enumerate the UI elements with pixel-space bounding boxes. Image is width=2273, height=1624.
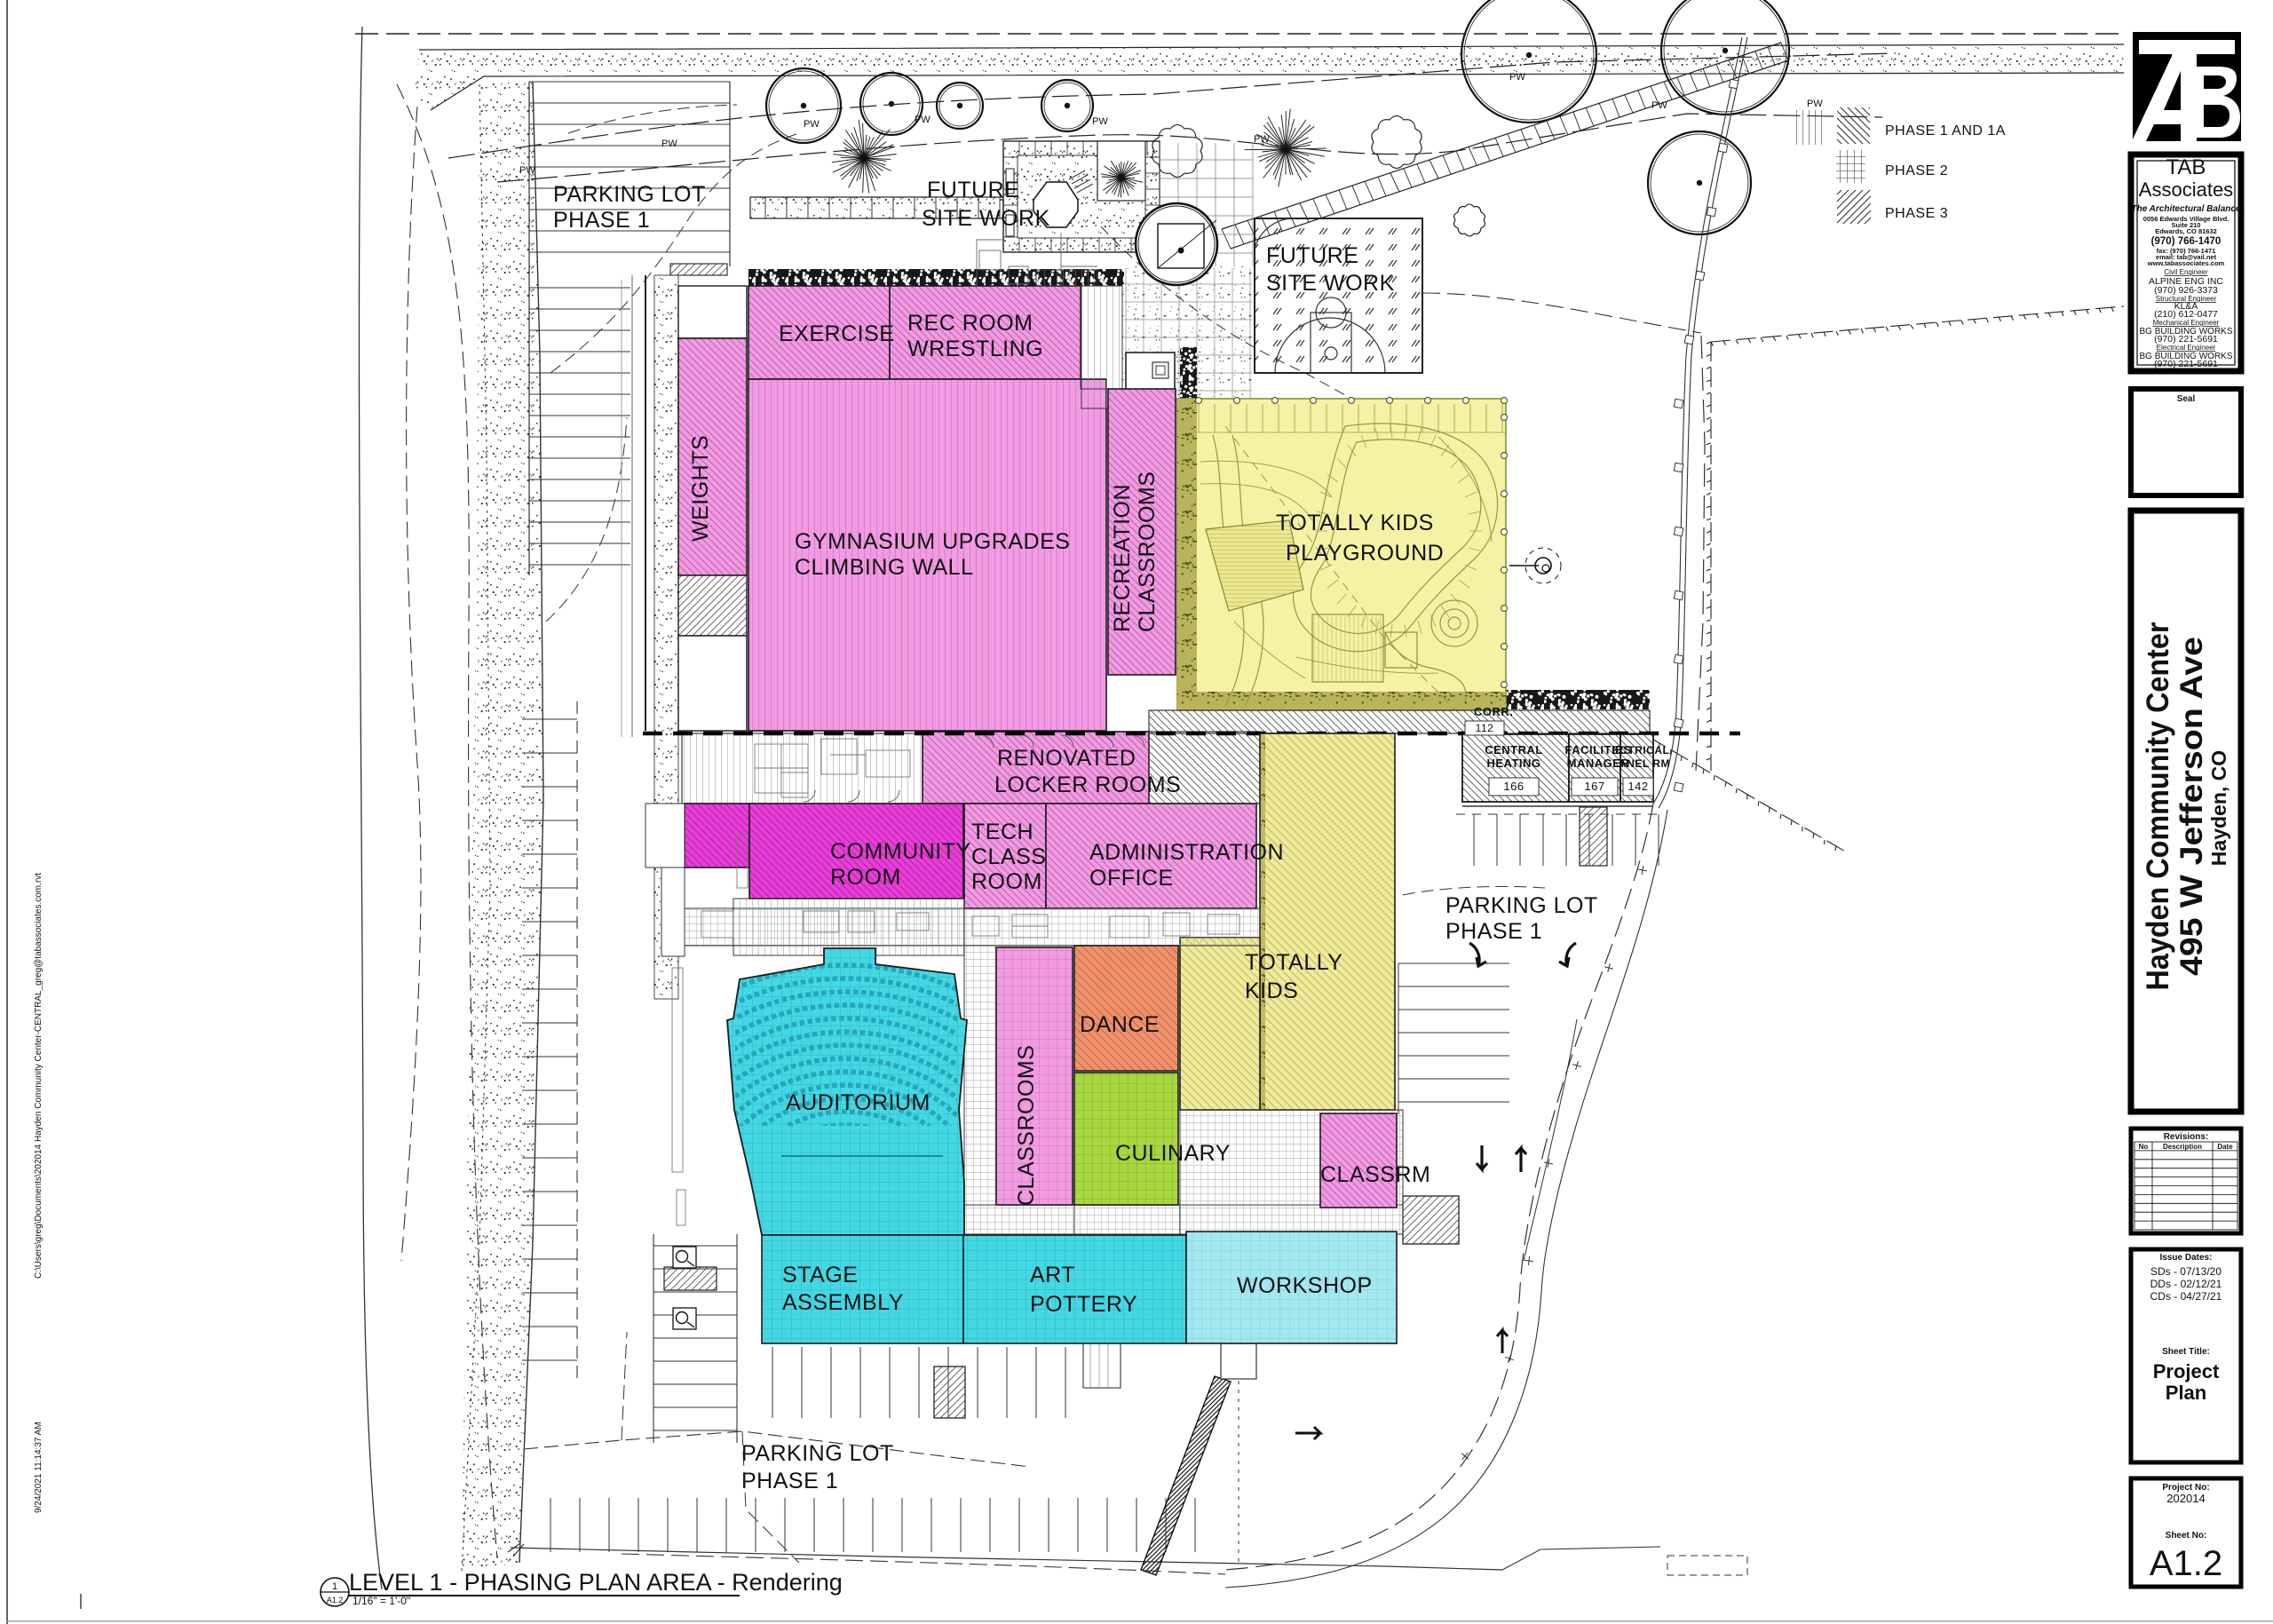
svg-text:PHASE 1: PHASE 1 xyxy=(741,1469,838,1493)
svg-text:WORKSHOP: WORKSHOP xyxy=(1237,1273,1373,1298)
svg-text:Date: Date xyxy=(2217,1143,2233,1151)
svg-text:Revisions:: Revisions: xyxy=(2164,1132,2209,1142)
svg-text:142: 142 xyxy=(1628,780,1648,793)
svg-text:No: No xyxy=(2139,1143,2149,1151)
svg-text:TOTALLY: TOTALLY xyxy=(1245,950,1342,975)
svg-text:CLASS: CLASS xyxy=(971,844,1046,869)
svg-text:Project: Project xyxy=(2153,1360,2220,1382)
svg-text:ART: ART xyxy=(1030,1263,1075,1287)
svg-text:PW: PW xyxy=(915,115,931,125)
svg-text:RECREATION: RECREATION xyxy=(1110,484,1135,632)
svg-text:CLASSRM: CLASSRM xyxy=(1320,1162,1430,1187)
svg-text:ROOM: ROOM xyxy=(971,869,1042,894)
svg-text:PARKING LOT: PARKING LOT xyxy=(553,182,706,207)
svg-text:112: 112 xyxy=(1476,722,1494,734)
svg-text:RENOVATED: RENOVATED xyxy=(997,746,1136,771)
svg-text:PW: PW xyxy=(519,165,535,176)
svg-text:REC ROOM: REC ROOM xyxy=(907,311,1034,336)
svg-text:Issue Dates:: Issue Dates: xyxy=(2160,1253,2213,1263)
svg-text:Hayden Community Center: Hayden Community Center xyxy=(2141,622,2175,990)
svg-text:A1.2: A1.2 xyxy=(2150,1544,2222,1583)
svg-text:WRESTLING: WRESTLING xyxy=(907,337,1043,361)
svg-text:ASSEMBLY: ASSEMBLY xyxy=(782,1290,904,1315)
svg-text:Sheet Title:: Sheet Title: xyxy=(2162,1347,2210,1357)
svg-text:(970) 766-1470: (970) 766-1470 xyxy=(2151,236,2222,247)
svg-text:TOTALLY KIDS: TOTALLY KIDS xyxy=(1276,511,1434,535)
svg-text:EXERCISE: EXERCISE xyxy=(779,321,894,346)
svg-text:FUTURE: FUTURE xyxy=(927,178,1019,202)
svg-text:TAB: TAB xyxy=(2166,155,2206,179)
svg-text:CULINARY: CULINARY xyxy=(1115,1141,1231,1166)
svg-text:www.tabassociates.com: www.tabassociates.com xyxy=(2147,259,2225,267)
svg-text:Plan: Plan xyxy=(2166,1382,2206,1404)
svg-text:PHASE 1: PHASE 1 xyxy=(1445,919,1542,944)
svg-text:Hayden, CO: Hayden, CO xyxy=(2207,750,2230,866)
svg-text:CLIMBING WALL: CLIMBING WALL xyxy=(795,555,973,580)
svg-text:AUDITORIUM: AUDITORIUM xyxy=(786,1090,931,1115)
svg-text:Electrical Engineer: Electrical Engineer xyxy=(2157,344,2216,352)
svg-text:9/24/2021 11:14:37 AM: 9/24/2021 11:14:37 AM xyxy=(34,1422,44,1513)
svg-text:SDs - 07/13/20: SDs - 07/13/20 xyxy=(2150,1265,2222,1278)
svg-text:PLAYGROUND: PLAYGROUND xyxy=(1286,541,1444,566)
svg-text:ROOM: ROOM xyxy=(830,865,901,890)
svg-text:CDs - 04/27/21: CDs - 04/27/21 xyxy=(2150,1290,2222,1303)
svg-text:495 W Jefferson Ave: 495 W Jefferson Ave xyxy=(2174,637,2209,976)
svg-text:PHASE 1: PHASE 1 xyxy=(553,208,650,233)
svg-text:Civil Engineer: Civil Engineer xyxy=(2164,268,2208,276)
svg-text:CENTRAL: CENTRAL xyxy=(1485,743,1543,757)
svg-text:Description: Description xyxy=(2163,1143,2202,1151)
svg-text:PARKING LOT: PARKING LOT xyxy=(741,1441,894,1466)
svg-text:PHASE 3: PHASE 3 xyxy=(1885,206,1948,221)
svg-text:ANEL RM: ANEL RM xyxy=(1619,757,1670,770)
svg-text:CLASSROOMS: CLASSROOMS xyxy=(1014,1045,1039,1206)
svg-text:HEATING: HEATING xyxy=(1486,757,1540,770)
svg-text:POTTERY: POTTERY xyxy=(1030,1292,1137,1317)
svg-text:PW: PW xyxy=(1807,99,1823,109)
svg-text:PHASE 2: PHASE 2 xyxy=(1885,163,1948,178)
svg-text:Mechanical Engineer: Mechanical Engineer xyxy=(2153,319,2220,327)
svg-text:PW: PW xyxy=(661,139,677,149)
svg-text:OFFICE: OFFICE xyxy=(1089,866,1174,891)
svg-text:FUTURE: FUTURE xyxy=(1266,243,1358,268)
svg-text:COMMUNITY: COMMUNITY xyxy=(830,839,971,864)
svg-text:SITE WORK: SITE WORK xyxy=(1266,271,1395,296)
svg-text:TECH: TECH xyxy=(971,820,1034,844)
svg-text:GYMNASIUM UPGRADES: GYMNASIUM UPGRADES xyxy=(795,529,1070,554)
svg-text:C:\Users\greg\Documents\202014: C:\Users\greg\Documents\202014 Hayden Co… xyxy=(34,873,44,1279)
svg-text:The Architectural Balance: The Architectural Balance xyxy=(2131,204,2240,214)
svg-text:Sheet No:: Sheet No: xyxy=(2166,1531,2207,1541)
svg-text:PW: PW xyxy=(804,119,820,130)
svg-text:PW: PW xyxy=(1254,134,1270,145)
svg-text:1: 1 xyxy=(332,1581,337,1592)
svg-text:KIDS: KIDS xyxy=(1245,978,1298,1003)
svg-text:Associates: Associates xyxy=(2139,178,2233,201)
svg-text:Seal: Seal xyxy=(2177,394,2196,404)
svg-text:LEVEL 1 - PHASING PLAN AREA -: LEVEL 1 - PHASING PLAN AREA - Rendering xyxy=(349,1569,843,1596)
svg-text:SITE WORK: SITE WORK xyxy=(922,206,1050,231)
svg-text:PHASE 1 AND 1A: PHASE 1 AND 1A xyxy=(1885,123,2006,139)
svg-text:PARKING LOT: PARKING LOT xyxy=(1445,893,1598,918)
svg-text:ADMINISTRATION: ADMINISTRATION xyxy=(1089,840,1284,865)
svg-text:CORR.: CORR. xyxy=(1474,705,1513,718)
svg-text:167: 167 xyxy=(1584,780,1604,793)
svg-text:Edwards, CO 81632: Edwards, CO 81632 xyxy=(2155,227,2217,235)
svg-text:202014: 202014 xyxy=(2166,1492,2205,1505)
svg-text:A1.2: A1.2 xyxy=(327,1596,344,1604)
svg-text:166: 166 xyxy=(1503,780,1524,793)
svg-text:PW: PW xyxy=(1509,72,1525,83)
svg-text:WEIGHTS: WEIGHTS xyxy=(688,435,713,542)
svg-text:DANCE: DANCE xyxy=(1080,1012,1160,1037)
svg-text:CLASSROOMS: CLASSROOMS xyxy=(1135,471,1160,632)
svg-text:1/16" = 1'-0": 1/16" = 1'-0" xyxy=(352,1595,410,1607)
svg-text:ECTRICAL: ECTRICAL xyxy=(1612,744,1670,757)
svg-text:DDs - 02/12/21: DDs - 02/12/21 xyxy=(2150,1278,2222,1290)
svg-text:(970) 221-5691: (970) 221-5691 xyxy=(2154,359,2218,369)
svg-text:PW: PW xyxy=(1092,116,1108,127)
svg-text:STAGE: STAGE xyxy=(782,1263,858,1287)
svg-text:LOCKER ROOMS: LOCKER ROOMS xyxy=(994,772,1181,797)
